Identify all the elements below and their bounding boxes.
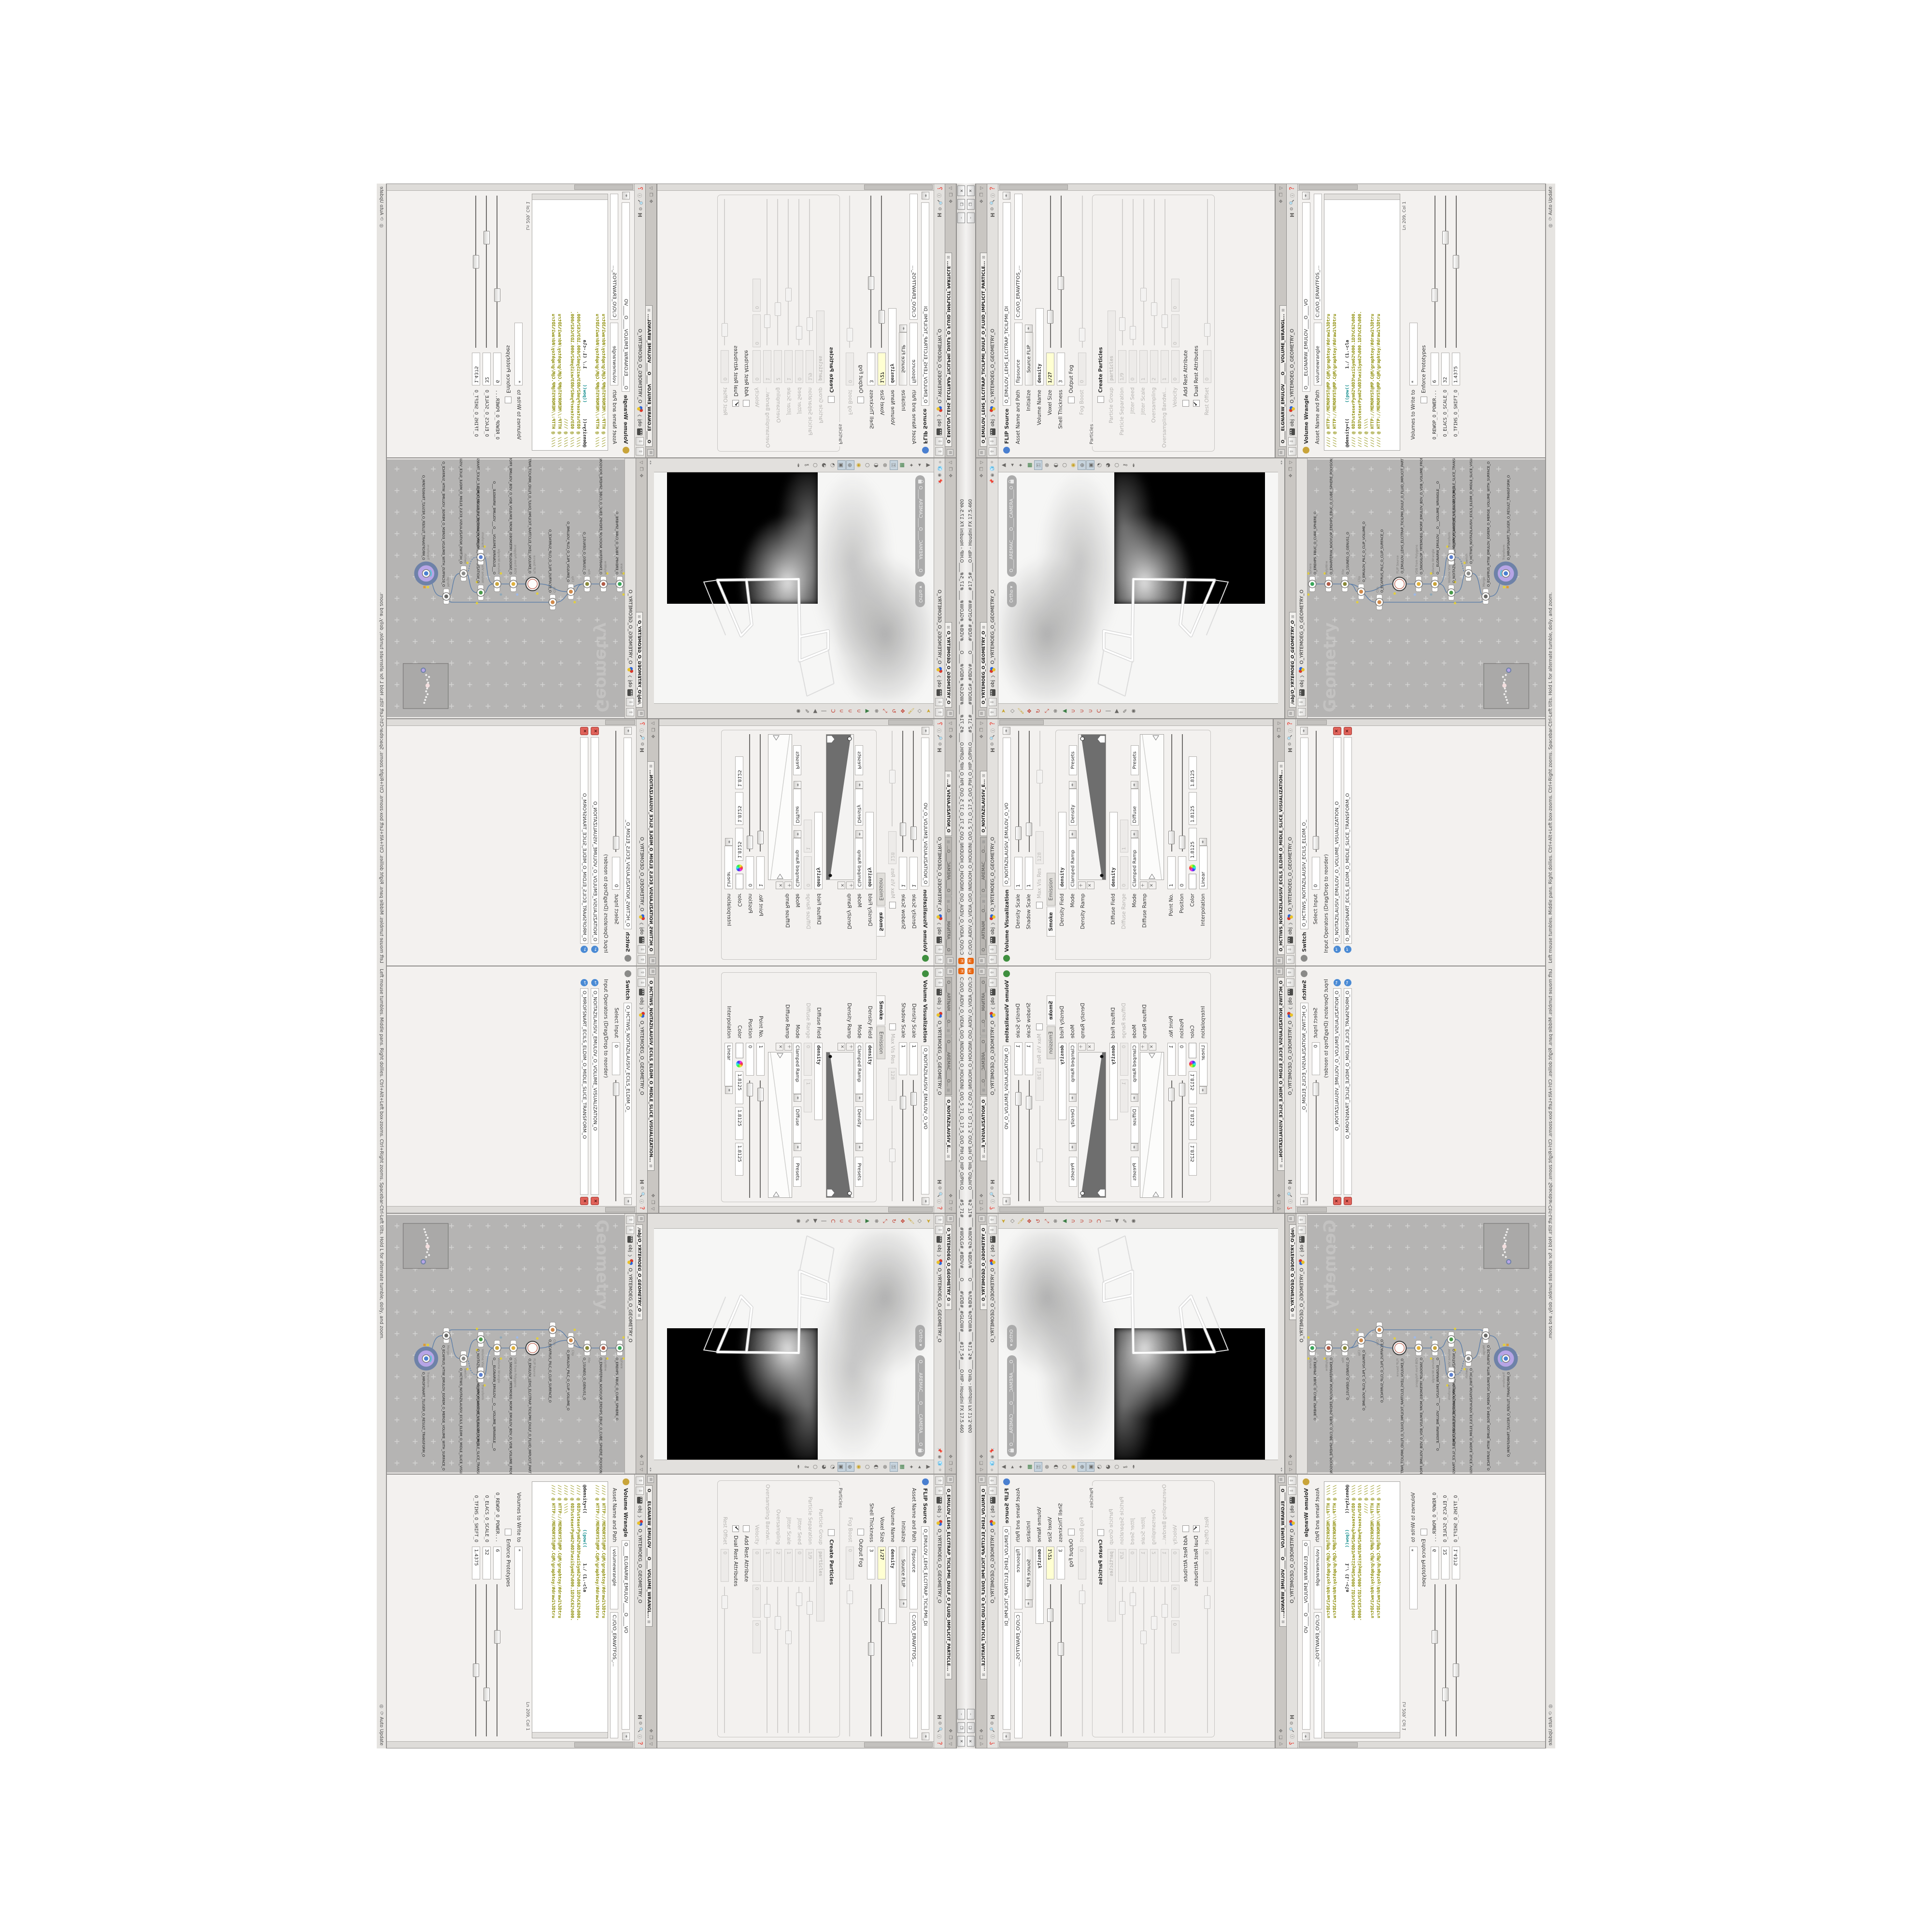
add-rest-checkbox[interactable]	[1182, 1525, 1189, 1532]
tab-flip-source[interactable]: O_EMULOV_LEHS_ELCITRAP_TICILPMI_DIULF_O_…	[945, 253, 952, 447]
lock-camera-icon[interactable]: ⚿	[1034, 1462, 1042, 1472]
breadcrumb-root[interactable]: obj	[990, 1245, 995, 1252]
ramp-delete-icon[interactable]: ✕	[838, 1043, 845, 1051]
select-input-slider[interactable]	[613, 1080, 620, 1201]
presets-button[interactable]: Presets	[855, 745, 864, 775]
nav-up-icon[interactable]: ⇧	[1286, 968, 1294, 977]
dot-icon[interactable]: ○	[811, 460, 820, 470]
oversampling-slider[interactable]	[1151, 199, 1158, 345]
density-scale-slider[interactable]	[910, 731, 918, 852]
color-b-field[interactable]: 1.8125	[736, 756, 744, 789]
reorder-icon[interactable]: ↩	[592, 979, 599, 986]
color-r-field[interactable]: 1.8125	[736, 828, 744, 861]
pane-grid-icon[interactable]: ▤	[947, 710, 953, 717]
asset-name-field[interactable]: volumewrangle	[1314, 323, 1322, 385]
position-field[interactable]: 0	[746, 856, 754, 889]
jitter-scale-field[interactable]: 1	[785, 350, 793, 383]
power-field[interactable]: 6	[494, 1547, 502, 1579]
jitter-seed-slider[interactable]	[1129, 1587, 1136, 1733]
density-field[interactable]: density	[1058, 1043, 1066, 1120]
switch-input-1[interactable]: O_MROFSNART_ECILS_ELDIM_O_MIDLE_SLICE_TR…	[1344, 988, 1352, 1195]
flagged-sphere-icon[interactable]: ◔	[1095, 460, 1103, 470]
tab-mantra[interactable]: O____ARTNAM____O...⊠	[945, 977, 952, 1036]
breadcrumb-root[interactable]: obj	[1290, 419, 1295, 426]
pin-icon[interactable]: 📌	[937, 1448, 942, 1453]
volume-name-field[interactable]: density	[889, 308, 897, 385]
density-ramp[interactable]	[1078, 1052, 1106, 1198]
gear-icon[interactable]: ⚙	[937, 1721, 942, 1725]
scrollbar[interactable]	[998, 1206, 1273, 1213]
voxel-size-field[interactable]: 1/27	[1046, 1547, 1054, 1579]
pane-grid-icon[interactable]: ▤	[979, 968, 985, 975]
dual-rest-checkbox[interactable]	[1193, 400, 1200, 407]
nav-down-icon[interactable]: ⇩	[989, 979, 997, 987]
node-name-field[interactable]: O_NOITAZILAUSIV_EMULOV_O_VO	[1003, 738, 1011, 887]
display-volume-icon[interactable]: ▣	[838, 460, 846, 470]
ramp-target2-dropdown[interactable]: Diffuse	[1131, 789, 1139, 825]
fog-boost-slider[interactable]	[1079, 1584, 1086, 1736]
houdini-help-icon[interactable]: H	[990, 1179, 996, 1184]
lock-camera-icon[interactable]: ⚿	[890, 1462, 898, 1472]
nav-up-icon[interactable]: ⇧	[626, 708, 635, 716]
velocity-z-field[interactable]: 0	[753, 1620, 761, 1653]
tab-camera[interactable]: O____AREMAC____O...⊠	[980, 1037, 987, 1095]
notes-icon[interactable]: ✎	[803, 1216, 811, 1226]
shift-field[interactable]: 1.4375	[1452, 1547, 1460, 1579]
particle-separation-field[interactable]: 1/9	[806, 350, 814, 383]
rotate-tool-icon[interactable]: ↻	[1034, 1216, 1042, 1226]
vex-code-editor[interactable]: //// @ HTTP://MEMORYST@MP.C@M/graphtoy/#…	[532, 1481, 608, 1738]
houdini-help-icon[interactable]: H	[937, 213, 943, 217]
tab-visualization[interactable]: O_NOITAZILAUSIV_E...⊠	[945, 771, 952, 836]
ramp2-add-icon[interactable]: ＋	[1140, 1043, 1148, 1051]
pane-split-icon[interactable]: ✥	[980, 1193, 984, 1197]
network-minimap[interactable]	[403, 664, 448, 709]
prev-next-icon[interactable]: ◂▸	[922, 192, 929, 199]
pane-menu-icon[interactable]: ▽	[948, 722, 952, 725]
ramp2-add-icon[interactable]: ＋	[784, 1043, 792, 1051]
oversampling-slider[interactable]	[775, 1587, 782, 1733]
mode-dropdown[interactable]: Clamped Ramp	[855, 838, 864, 889]
nav-up-icon[interactable]: ⇧	[638, 968, 646, 977]
snap-grid-icon[interactable]: ∪	[855, 706, 863, 716]
pane-menu-icon[interactable]: ▽	[1289, 461, 1293, 464]
pane-menu-icon[interactable]: ▽	[650, 1207, 655, 1210]
info-icon[interactable]: ⓘ	[990, 193, 996, 198]
back-icon[interactable]: ◂	[916, 1462, 924, 1472]
color-b-field[interactable]: 1.8125	[1189, 1143, 1197, 1176]
search-icon[interactable]: 🔍	[1290, 199, 1294, 205]
shade-half-icon[interactable]: ◐	[1051, 460, 1060, 470]
headlight-icon[interactable]: ◉	[855, 460, 863, 470]
point-no-field[interactable]: 1	[1167, 1043, 1176, 1076]
network-canvas[interactable]: Geometry SphereO_EREHPS_EBUC_O_CUBE_SPHE…	[1307, 458, 1545, 718]
pane-maximize-icon[interactable]: ❒	[948, 467, 952, 471]
search-icon[interactable]: 🔍	[990, 1192, 995, 1197]
lightbulb-icon[interactable]: ○	[1060, 460, 1068, 470]
asset-path-field[interactable]: C:/O/O_ERAWTFOS_...	[1014, 194, 1023, 320]
jitter-seed-field[interactable]: 0	[1129, 350, 1137, 383]
asset-name-field[interactable]: flipsource	[910, 1547, 918, 1609]
shell-thickness-slider[interactable]	[1057, 1584, 1065, 1736]
shadow-scale-slider[interactable]	[900, 731, 907, 852]
tab-network[interactable]: /obj/O_YRTEMOEG_O_GEOMETRY_O⊠	[636, 1224, 643, 1320]
network-minimap[interactable]	[1484, 664, 1529, 709]
gear-icon[interactable]: ⚙	[990, 1186, 995, 1190]
tab-volume-wrangle[interactable]: O____ELGNARW_EMULOV____O____VOLUME_WRANG…	[646, 1485, 653, 1627]
rest-offset-field[interactable]: 0	[1203, 350, 1211, 383]
scrollbar[interactable]	[1298, 1741, 1545, 1748]
oversampling-field[interactable]: 2	[1150, 350, 1158, 383]
rest-offset-slider[interactable]	[722, 1587, 729, 1733]
reorder-icon[interactable]: ↩	[1334, 979, 1341, 986]
help-icon[interactable]: ❓	[638, 186, 642, 191]
scrollbar[interactable]	[387, 184, 634, 191]
snap-point-icon[interactable]: ∪	[846, 706, 854, 716]
shell-thickness-field[interactable]: 3	[1057, 1547, 1065, 1579]
camera-pill[interactable]: O____AREMAC____O____CAMERA____O	[1007, 475, 1017, 577]
nav-down-icon[interactable]: ⇩	[989, 1487, 997, 1495]
minimize-button[interactable]: –	[967, 1709, 975, 1719]
breadcrumb-node[interactable]: O_YRTEMOEG_O_GEOMETRY_O	[628, 590, 633, 664]
back-icon[interactable]: ◂	[916, 460, 924, 470]
headlight-icon[interactable]: ◉	[1069, 460, 1077, 470]
nav-up-icon[interactable]: ⇧	[936, 1477, 944, 1485]
node-name-field[interactable]: O_EMULOV_LEHS_ELCITRAP_TICILPMI_DI	[1003, 202, 1011, 406]
breadcrumb-node[interactable]: O_YRTEMOEG_O_GEOMETRY_O	[639, 1021, 645, 1095]
diffuse-range-min[interactable]: 0	[1120, 1043, 1128, 1076]
pane-grid-icon[interactable]: ▤	[979, 710, 985, 717]
power-field[interactable]: 6	[1431, 353, 1439, 385]
restore-button[interactable]: ❐	[958, 1722, 966, 1733]
delete-input-icon[interactable]: ✕	[1344, 1197, 1352, 1205]
prev-next-icon[interactable]: ◂▸	[922, 1733, 929, 1740]
help-icon[interactable]: ❓	[990, 1206, 995, 1211]
node-name-field[interactable]: O_NOITAZILAUSIV_EMULOV_O_VO	[922, 1046, 930, 1195]
houdini-help-icon[interactable]: H	[1287, 748, 1293, 753]
oversampling-bandwidth-slider[interactable]	[764, 199, 771, 345]
tab-smoke[interactable]: Smoke	[877, 995, 885, 1025]
pane-menu-icon[interactable]: ▽	[1279, 186, 1284, 190]
asset-path-field[interactable]: C:/O/O_ERAWTFOS_...	[611, 194, 619, 320]
flagged-sphere2-icon[interactable]: ◕	[1104, 1462, 1112, 1472]
rest-offset-slider[interactable]	[722, 199, 729, 345]
diffuse-ramp[interactable]	[1140, 734, 1164, 880]
nav-up-icon[interactable]: ⇧	[936, 1216, 944, 1224]
select-input-field[interactable]: 0	[612, 1042, 621, 1075]
nav-down-icon[interactable]: ⇩	[1298, 1226, 1306, 1234]
breadcrumb-node[interactable]: O_YRTEMOEG_O_GEOMETRY_O	[937, 329, 942, 403]
breadcrumb-node[interactable]: O_YRTEMOEG_O_GEOMETRY_O	[1290, 329, 1295, 403]
ramp-target2-dropdown[interactable]: Diffuse	[1131, 1107, 1139, 1143]
scale-tool-icon[interactable]: ⤡	[1043, 1216, 1051, 1226]
nav-down-icon[interactable]: ⇩	[989, 1226, 997, 1234]
color-swatch[interactable]	[736, 874, 743, 889]
pane-grid-icon[interactable]: ▤	[1278, 1476, 1285, 1483]
nav-down-icon[interactable]: ⇩	[1286, 979, 1294, 987]
scrollbar[interactable]	[659, 719, 934, 726]
pane-maximize-icon[interactable]: ❒	[980, 728, 984, 732]
flagged-sphere-icon[interactable]: ◔	[829, 1462, 837, 1472]
tab-emission[interactable]: Emission	[877, 873, 885, 906]
point-no-field[interactable]: 1	[757, 1043, 765, 1076]
scrollbar[interactable]	[1298, 184, 1545, 191]
houdini-help-icon[interactable]: H	[990, 1715, 996, 1719]
help-icon[interactable]: ❓	[639, 721, 644, 726]
flagged-sphere2-icon[interactable]: ◕	[820, 1462, 828, 1472]
scale-slider[interactable]	[1442, 1584, 1449, 1736]
mode-dropdown[interactable]: Clamped Ramp	[1069, 1043, 1077, 1094]
nav-up-icon[interactable]: ⇧	[936, 968, 944, 977]
node-name-field[interactable]: O_NOITAZILAUSIV_EMULOV_O_VO	[922, 738, 930, 887]
play-icon[interactable]: ▶	[811, 1216, 820, 1226]
background-image-icon[interactable]: ▦	[1025, 460, 1034, 470]
tab-flip-source[interactable]: O_EMULOV_LEHS_ELCITRAP_TICILPMI_DIULF_O_…	[945, 1485, 952, 1679]
diffuse-field[interactable]: density	[815, 1043, 823, 1120]
snap-grid-icon[interactable]: ∪	[1069, 1216, 1077, 1226]
diamond-icon[interactable]: ✦	[907, 1462, 915, 1472]
pane-menu-icon[interactable]: ▽	[948, 1207, 952, 1210]
pane-menu-icon[interactable]: ▽	[948, 461, 952, 464]
mode-dropdown[interactable]: Clamped Ramp	[855, 1043, 864, 1094]
oversampling-bandwidth-slider[interactable]	[764, 1587, 771, 1733]
scroll-up-icon[interactable]: ▲	[924, 460, 933, 470]
switch-input-0[interactable]: O_NOITAZILAUSIV_EMULOV_O_VOLUME_VISUALIZ…	[591, 988, 599, 1195]
max-vis-res-slider[interactable]	[1036, 731, 1043, 826]
shell-thickness-slider[interactable]	[1057, 196, 1065, 348]
node-name-field[interactable]: O_HCTIWS_NOITAZILAUSIV_ECILS_ELDIM_O_	[1300, 738, 1308, 929]
particle-separation-slider[interactable]	[1119, 1587, 1126, 1733]
pane-grid-icon[interactable]: ▤	[979, 449, 985, 456]
reorder-icon[interactable]: ↩	[581, 946, 588, 953]
presets-button[interactable]: Presets	[1069, 1157, 1077, 1187]
color-g-field[interactable]: 1.8125	[736, 1107, 744, 1140]
back-icon[interactable]: ◂	[1008, 1462, 1016, 1472]
network-minimap[interactable]	[1484, 1223, 1529, 1268]
shade-dark-icon[interactable]: ⊗	[1043, 460, 1051, 470]
prev-next-icon[interactable]: ◂▸	[624, 1197, 632, 1205]
voxel-size-slider[interactable]	[1047, 1584, 1054, 1736]
presets-button[interactable]: Presets	[1069, 745, 1077, 775]
node-name-field[interactable]: O_EMULOV_LEHS_ELCITRAP_TICILPMI_DI	[1003, 1526, 1011, 1730]
nav-up-icon[interactable]: ⇧	[636, 1477, 644, 1485]
background-image-icon[interactable]: ▦	[1025, 1462, 1034, 1472]
oversampling-bandwidth-field[interactable]: 1	[1161, 1549, 1169, 1582]
rotate-tool-icon[interactable]: ↻	[1034, 706, 1042, 716]
shift-slider[interactable]	[473, 1584, 480, 1736]
gear-icon[interactable]: ⚙	[638, 1721, 642, 1725]
delete-input-icon[interactable]: ✕	[1344, 727, 1352, 735]
scale-field[interactable]: 32	[1441, 1547, 1449, 1579]
nav-down-icon[interactable]: ⇩	[1286, 945, 1294, 953]
pane-maximize-icon[interactable]: ❒	[948, 1735, 952, 1739]
nav-down-icon[interactable]: ⇩	[1288, 1487, 1296, 1495]
node-name-field[interactable]: O_HCTIWS_NOITAZILAUSIV_ECILS_ELDIM_O_	[624, 1003, 632, 1194]
network-canvas[interactable]: Geometry SphereO_EREHPS_EBUC_O_CUBE_SPHE…	[387, 1214, 625, 1474]
scale-slider[interactable]	[483, 196, 491, 348]
power-field[interactable]: 6	[1431, 1547, 1439, 1579]
select-tool-icon[interactable]: ➤	[924, 1216, 933, 1226]
snap-multi-icon[interactable]: C	[1095, 1216, 1103, 1226]
color-r-field[interactable]: 1.8125	[1189, 828, 1197, 861]
nav-up-icon[interactable]: ⇧	[636, 447, 644, 455]
nav-down-icon[interactable]: ⇩	[1288, 437, 1296, 445]
volume-name-field[interactable]: density	[1036, 308, 1044, 385]
lightbulb-icon[interactable]: ○	[1060, 1462, 1068, 1472]
node-name-field[interactable]: O____ELGNARW_EMULOV____O____VO	[1302, 1540, 1310, 1730]
pane-menu-icon[interactable]: ▽	[650, 722, 655, 725]
snowflake-icon[interactable]: ❄	[1051, 706, 1060, 716]
pane-menu-icon[interactable]: ▽	[639, 461, 643, 464]
shift-field[interactable]: 1.4375	[472, 1547, 481, 1579]
color-g-field[interactable]: 1.8125	[736, 792, 744, 825]
asset-path-field[interactable]: C:/O/O_ERAWTFOS_...	[910, 1612, 918, 1738]
projection-pill[interactable]: Ortho ▾	[1007, 582, 1017, 607]
breadcrumb-root[interactable]: obj	[990, 680, 995, 687]
dual-rest-checkbox[interactable]	[1193, 1525, 1200, 1532]
back-icon[interactable]: ◂	[1008, 460, 1016, 470]
breadcrumb-node[interactable]: O_YRTEMOEG_O_GEOMETRY_O	[1290, 1529, 1295, 1603]
pane-grid-icon[interactable]: ▤	[649, 957, 656, 964]
max-vis-res-slider[interactable]	[889, 731, 896, 826]
lightbulb-icon[interactable]: ○	[864, 1462, 872, 1472]
pen-icon[interactable]: ✒	[794, 460, 802, 470]
display-volume-icon[interactable]: ▣	[838, 1462, 846, 1472]
nav-up-icon[interactable]: ⇧	[989, 968, 997, 977]
axis-triad-icon[interactable]: ▲	[864, 1216, 872, 1226]
nav-up-icon[interactable]: ⇧	[1298, 708, 1306, 716]
tab-scene-viewer[interactable]: O_YRTEMOEG_O_GEOMETRY_O⊠	[980, 622, 987, 708]
shade-half-icon[interactable]: ◐	[1051, 1462, 1060, 1472]
oversampling-slider[interactable]	[1151, 1587, 1158, 1733]
velocity-z-field[interactable]: 0	[753, 279, 761, 312]
background-image-icon[interactable]: ▦	[898, 1462, 907, 1472]
breadcrumb-root[interactable]: obj	[937, 997, 942, 1005]
viewport-3d-canvas[interactable]: Ortho ▾ O____AREMAC____O____CAMERA____O	[654, 472, 934, 703]
color-swatch[interactable]	[1189, 1043, 1196, 1058]
particle-group-field[interactable]: particles	[1108, 311, 1116, 383]
particle-separation-field[interactable]: 1/9	[1118, 350, 1126, 383]
delete-input-icon[interactable]: ✕	[1333, 1197, 1341, 1205]
breadcrumb-node[interactable]: O_YRTEMOEG_O_GEOMETRY_O	[937, 1268, 942, 1342]
max-vis-res-checkbox[interactable]	[889, 1023, 896, 1030]
network-canvas[interactable]: Geometry SphereO_EREHPS_EBUC_O_CUBE_SPHE…	[1307, 1214, 1545, 1474]
max-vis-res-checkbox[interactable]	[889, 902, 896, 909]
tab-scene-viewer[interactable]: O_YRTEMOEG_O_GEOMETRY_O⊠	[945, 1224, 952, 1310]
ramp2-delete-icon[interactable]: ✕	[776, 881, 783, 889]
pin-icon[interactable]: 📌	[990, 1448, 995, 1453]
point-no-slider[interactable]	[1168, 734, 1175, 852]
presets2-button[interactable]: Presets	[1131, 1157, 1139, 1187]
gear-icon[interactable]: ⚙	[639, 742, 644, 746]
viewport-3d-canvas[interactable]: Ortho ▾ O____AREMAC____O____CAMERA____O	[998, 1229, 1278, 1460]
tab-emission[interactable]: Emission	[1047, 1026, 1055, 1060]
help-icon[interactable]: ❓	[937, 186, 942, 191]
color-wheel-icon[interactable]	[1189, 865, 1196, 871]
fog-boost-slider[interactable]	[1079, 196, 1086, 348]
asset-name-field[interactable]: volumewrangle	[611, 1547, 619, 1609]
asset-path-field[interactable]: C:/O/O_ERAWTFOS_...	[1314, 1612, 1322, 1738]
jitter-seed-slider[interactable]	[796, 1587, 803, 1733]
tab-volume-wrangle[interactable]: O____ELGNARW_EMULOV____O____VOLUME_WRANG…	[646, 305, 653, 447]
jitter-scale-slider[interactable]	[1140, 1587, 1147, 1733]
diffuse-ramp[interactable]	[768, 734, 792, 880]
breadcrumb-root[interactable]: obj	[639, 927, 645, 935]
pane-maximize-icon[interactable]: ❒	[1277, 1200, 1282, 1204]
breadcrumb-root[interactable]: obj	[990, 419, 995, 426]
pane-grid-icon[interactable]: ▤	[947, 449, 953, 456]
pane-split-icon[interactable]: ✥	[648, 199, 653, 203]
pane-split-icon[interactable]: ✥	[980, 1454, 984, 1458]
prev-next-icon[interactable]: ◂▸	[622, 192, 630, 199]
gear-icon[interactable]: ⚙	[990, 1721, 995, 1725]
shade-dark-icon[interactable]: ⊗	[1043, 1462, 1051, 1472]
switch-input-0[interactable]: O_NOITAZILAUSIV_EMULOV_O_VOLUME_VISUALIZ…	[1333, 737, 1341, 944]
pane-menu-icon[interactable]: ▽	[1277, 1207, 1282, 1210]
color-g-field[interactable]: 1.8125	[1189, 1107, 1197, 1140]
gear-icon[interactable]: ⚙	[990, 742, 995, 746]
shade-dark-icon[interactable]: ⊗	[881, 460, 889, 470]
tab-visualization[interactable]: O_NOITAZILAUSIV_E...⊠	[980, 771, 987, 836]
snap-multi-icon[interactable]: C	[829, 1216, 837, 1226]
nav-down-icon[interactable]: ⇩	[989, 437, 997, 445]
pane-grid-icon[interactable]: ▤	[1288, 710, 1294, 717]
shadow-scale-slider[interactable]	[900, 1080, 907, 1201]
pane-split-icon[interactable]: ✥	[948, 1454, 952, 1458]
nav-down-icon[interactable]: ⇩	[936, 979, 944, 987]
help-icon[interactable]: ❓	[1290, 186, 1294, 191]
create-particles-checkbox[interactable]	[1097, 1529, 1104, 1536]
snapshot-icon[interactable]: ⚪	[990, 460, 995, 464]
position-slider[interactable]	[1179, 1080, 1186, 1198]
pane-maximize-icon[interactable]: ❒	[948, 1200, 952, 1204]
camera-pill[interactable]: O____AREMAC____O____CAMERA____O	[1007, 1355, 1017, 1457]
window-titlebar[interactable]: H C:/O/O_AIDIV_O_VIDIA_O/O_INIDUOH_O_HOU…	[956, 184, 966, 966]
nav-up-icon[interactable]: ⇧	[936, 955, 944, 964]
pane-split-icon[interactable]: ✥	[648, 1729, 653, 1733]
ramp2-add-icon[interactable]: ＋	[784, 881, 792, 889]
particle-separation-slider[interactable]	[807, 199, 814, 345]
update-mode-selector[interactable]: Auto Update	[379, 1717, 384, 1746]
velocity-y-field[interactable]: 0	[753, 314, 761, 347]
initialize-dropdown[interactable]: Source FLIP	[1025, 1547, 1033, 1600]
viewport-3d-canvas[interactable]: Ortho ▾ O____AREMAC____O____CAMERA____O	[654, 1229, 934, 1460]
position-field[interactable]: 0	[746, 1043, 754, 1076]
nav-up-icon[interactable]: ⇧	[936, 708, 944, 716]
pane-maximize-icon[interactable]: ❒	[980, 1735, 984, 1739]
breadcrumb-node[interactable]: O_YRTEMOEG_O_GEOMETRY_O	[937, 590, 942, 664]
shell-thickness-field[interactable]: 3	[867, 353, 876, 385]
prev-next-icon[interactable]: ◂▸	[1003, 192, 1010, 199]
diffuse-range-max[interactable]: 1	[1120, 1080, 1128, 1112]
jitter-seed-slider[interactable]	[796, 199, 803, 345]
pane-grid-icon[interactable]: ▤	[1276, 957, 1283, 964]
prev-next-icon[interactable]: ◂▸	[1003, 1733, 1010, 1740]
info-icon[interactable]: ⓘ	[990, 728, 996, 733]
interpolation-dropdown[interactable]: Linear	[725, 846, 733, 889]
scroll-up-icon[interactable]: ▲	[999, 460, 1008, 470]
nav-up-icon[interactable]: ⇧	[626, 1216, 635, 1224]
color-r-field[interactable]: 1.8125	[1189, 1071, 1197, 1104]
info-icon[interactable]: ⓘ	[639, 1199, 645, 1204]
pane-maximize-icon[interactable]: ❒	[1277, 728, 1282, 732]
prev-next-icon[interactable]: ◂▸	[1003, 727, 1010, 735]
breadcrumb-root[interactable]: obj	[628, 1245, 633, 1252]
flagged-sphere2-icon[interactable]: ◕	[820, 460, 828, 470]
jitter-seed-field[interactable]: 0	[1129, 1549, 1137, 1582]
density-ramp[interactable]	[1078, 734, 1106, 880]
nav-up-icon[interactable]: ⇧	[989, 1477, 997, 1485]
